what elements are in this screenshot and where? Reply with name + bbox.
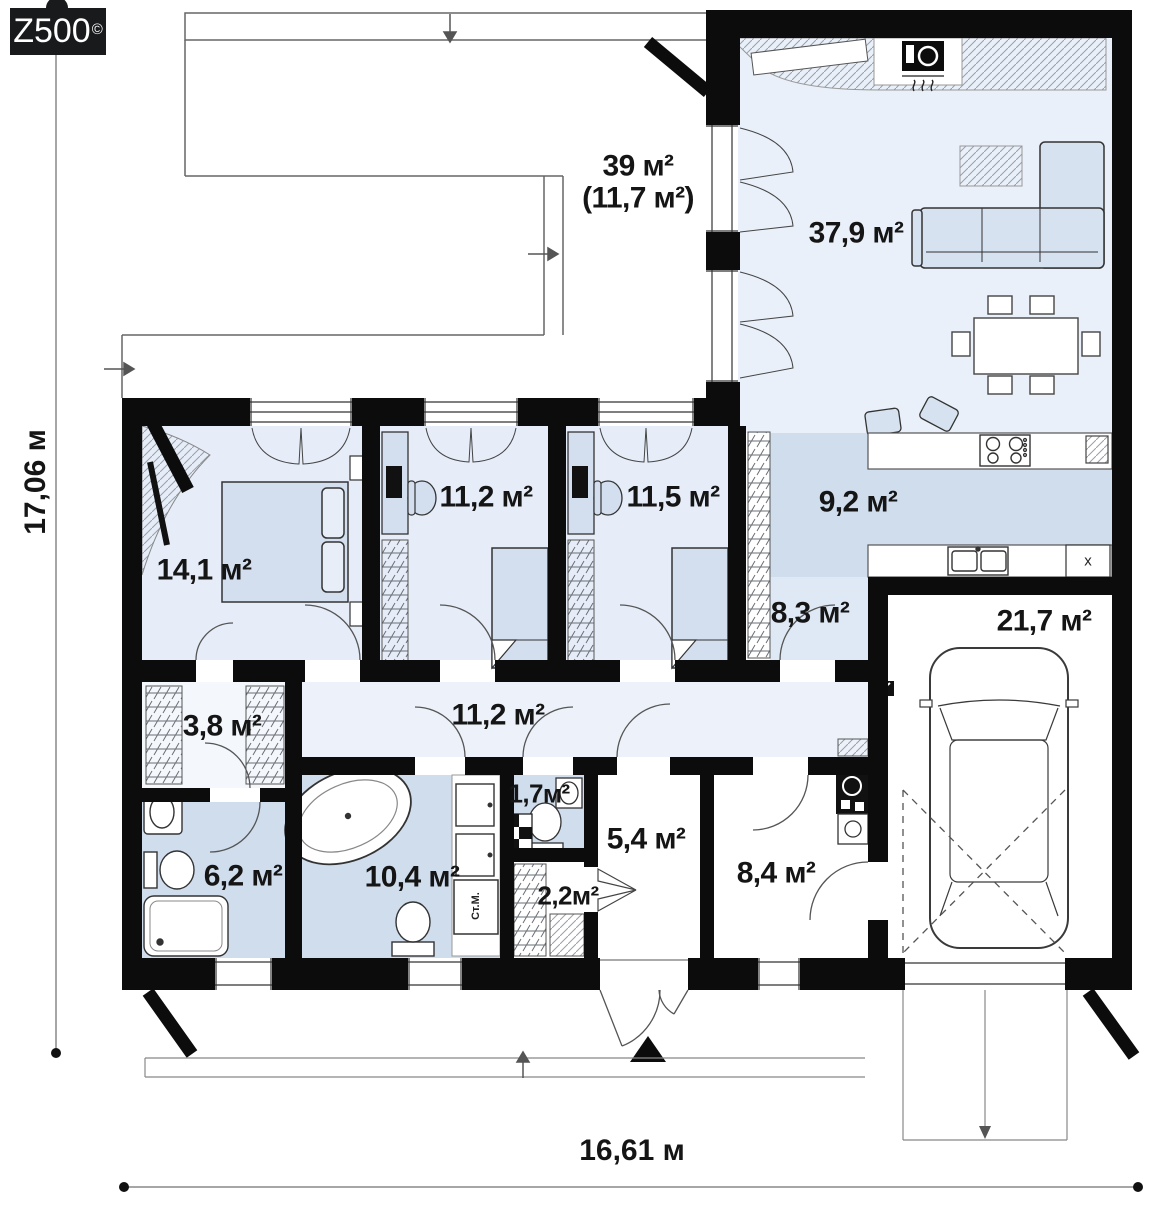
car <box>920 648 1078 948</box>
room-label-bedroom-2: 11,2 м² <box>439 481 532 513</box>
rug <box>960 146 1022 186</box>
room-label-bathroom-1: 6,2 м² <box>204 860 283 892</box>
double-sink-icon <box>948 547 1008 575</box>
cooktop-icon <box>980 435 1030 466</box>
room-label-garage: 21,7 м² <box>997 605 1092 637</box>
wardrobe <box>568 540 594 674</box>
room-label-hallway: 8,3 м² <box>771 597 850 629</box>
dimension-height: 17,06 м <box>19 429 53 535</box>
single-bed <box>672 548 728 668</box>
room-label-walk-in-closet: 3,8 м² <box>183 710 262 742</box>
logo-text: Z500 <box>13 12 91 51</box>
room-label-living-room: 37,9 м² <box>809 217 904 249</box>
monitor-icon <box>386 466 402 498</box>
dimension-width: 16,61 м <box>579 1134 685 1168</box>
wardrobe <box>382 540 408 674</box>
logo: Z500© <box>10 8 106 55</box>
porch-lines <box>145 1058 865 1077</box>
kitchen-sink-top <box>1086 436 1108 463</box>
toilet-tank <box>392 942 434 956</box>
floor-plan-drawing <box>0 0 1152 1213</box>
toilet-icon <box>160 851 194 889</box>
toilet-icon <box>529 803 561 841</box>
dishwasher-mark: x <box>1084 553 1092 570</box>
porch-arrow <box>517 1052 529 1078</box>
driveway <box>903 990 1067 1140</box>
room-label-terrace: 39 м² (11,7 м²) <box>582 151 694 214</box>
toilet-tank <box>144 852 157 888</box>
shower-icon <box>144 896 228 956</box>
room-label-bedroom-3: 11,5 м² <box>626 481 719 513</box>
room-label-bedroom-main: 14,1 м² <box>157 554 252 586</box>
copyright-mark: © <box>92 21 103 38</box>
single-bed <box>492 548 548 668</box>
room-label-bathroom-2: 10,4 м² <box>365 861 460 893</box>
room-label-utility-room: 8,4 м² <box>737 857 816 889</box>
monitor-icon <box>572 466 588 498</box>
boiler-icon <box>836 772 868 844</box>
room-label-corridor: 11,2 м² <box>451 699 544 731</box>
hall-wardrobe <box>748 432 770 658</box>
floor-plan-page: Z500© 39 м² (11,7 м²) 37,9 м² 14,1 м² 11… <box>0 0 1152 1213</box>
double-bed <box>222 456 364 626</box>
terrace-arrows <box>104 14 558 375</box>
washing-machine-label: Ст.М. <box>470 892 482 920</box>
toilet-icon <box>396 902 430 942</box>
room-label-wc: 1,7м² <box>508 780 569 807</box>
room-label-kitchen: 9,2 м² <box>819 486 898 518</box>
fireplace-icon <box>874 38 962 91</box>
room-label-storage: 2,2м² <box>537 882 598 909</box>
driveway-arrow <box>979 1126 991 1139</box>
room-label-entry-hall: 5,4 м² <box>607 823 686 855</box>
